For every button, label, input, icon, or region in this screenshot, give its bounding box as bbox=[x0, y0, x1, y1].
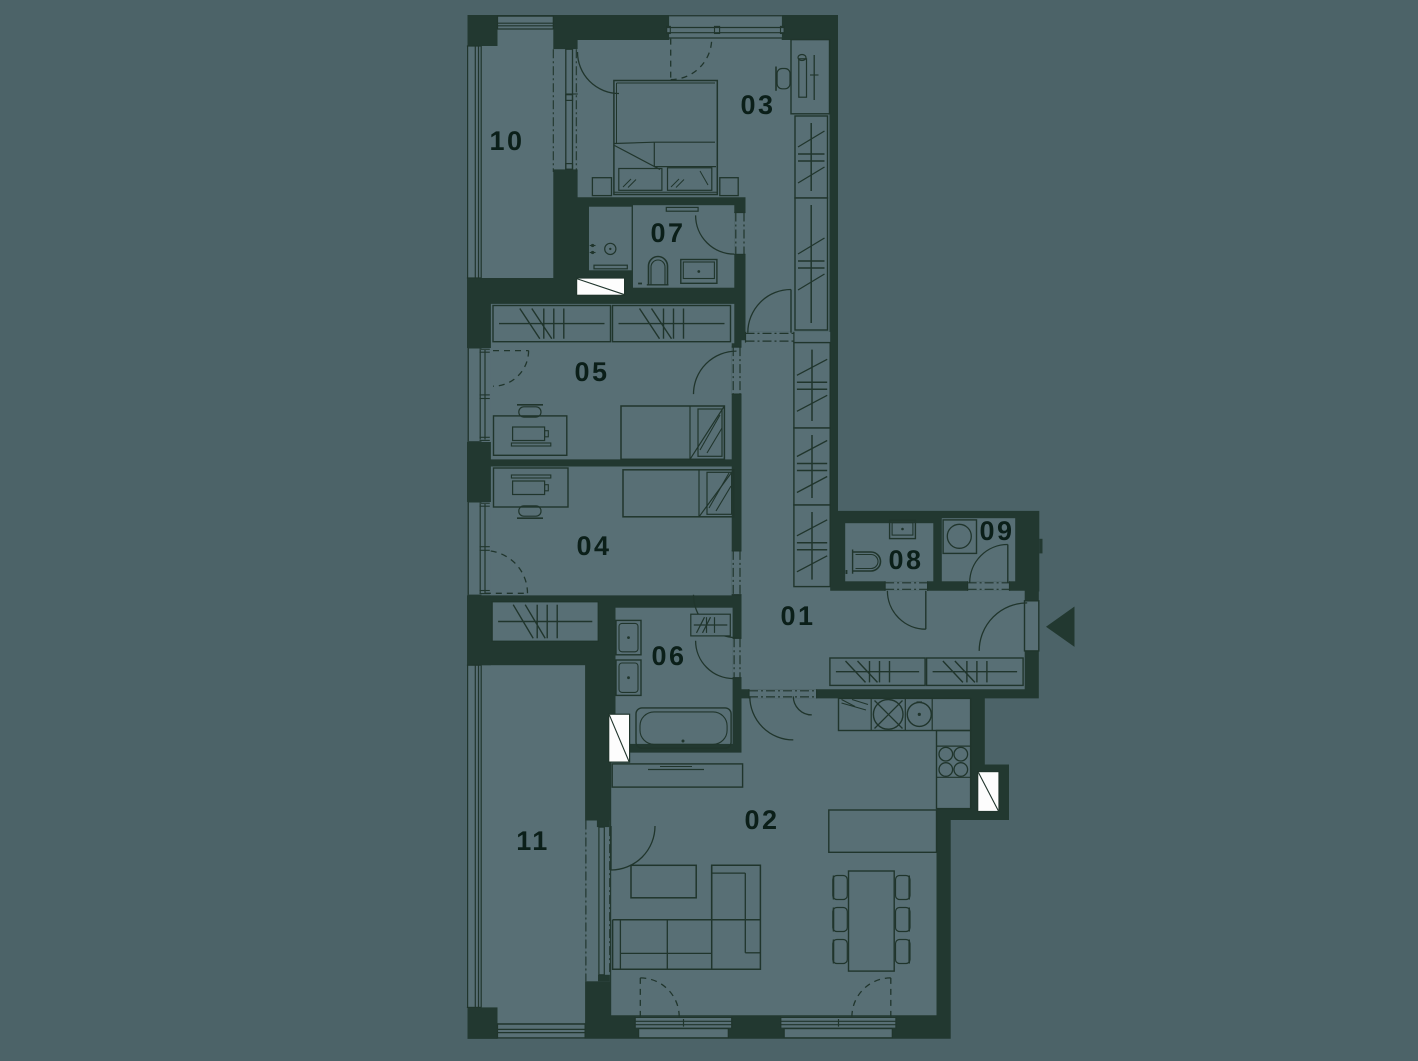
svg-text:06: 06 bbox=[651, 641, 686, 671]
svg-text:10: 10 bbox=[489, 126, 524, 156]
svg-text:08: 08 bbox=[888, 545, 923, 575]
svg-text:04: 04 bbox=[576, 531, 611, 561]
svg-text:03: 03 bbox=[740, 90, 775, 120]
svg-text:07: 07 bbox=[650, 218, 685, 248]
svg-text:09: 09 bbox=[979, 516, 1014, 546]
svg-text:01: 01 bbox=[780, 601, 815, 631]
svg-text:11: 11 bbox=[516, 826, 550, 856]
svg-text:05: 05 bbox=[574, 357, 609, 387]
svg-text:02: 02 bbox=[744, 805, 779, 835]
